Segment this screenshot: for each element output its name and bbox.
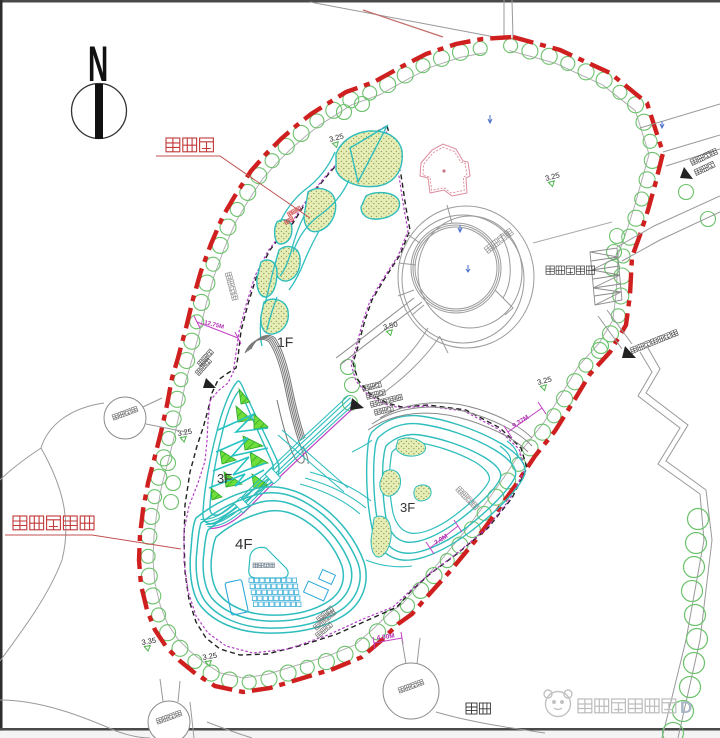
- svg-text:3F: 3F: [400, 500, 415, 515]
- svg-text:3F: 3F: [217, 471, 232, 486]
- svg-text:D: D: [680, 698, 692, 717]
- svg-text:1F: 1F: [277, 334, 293, 350]
- svg-text:4F: 4F: [235, 536, 253, 553]
